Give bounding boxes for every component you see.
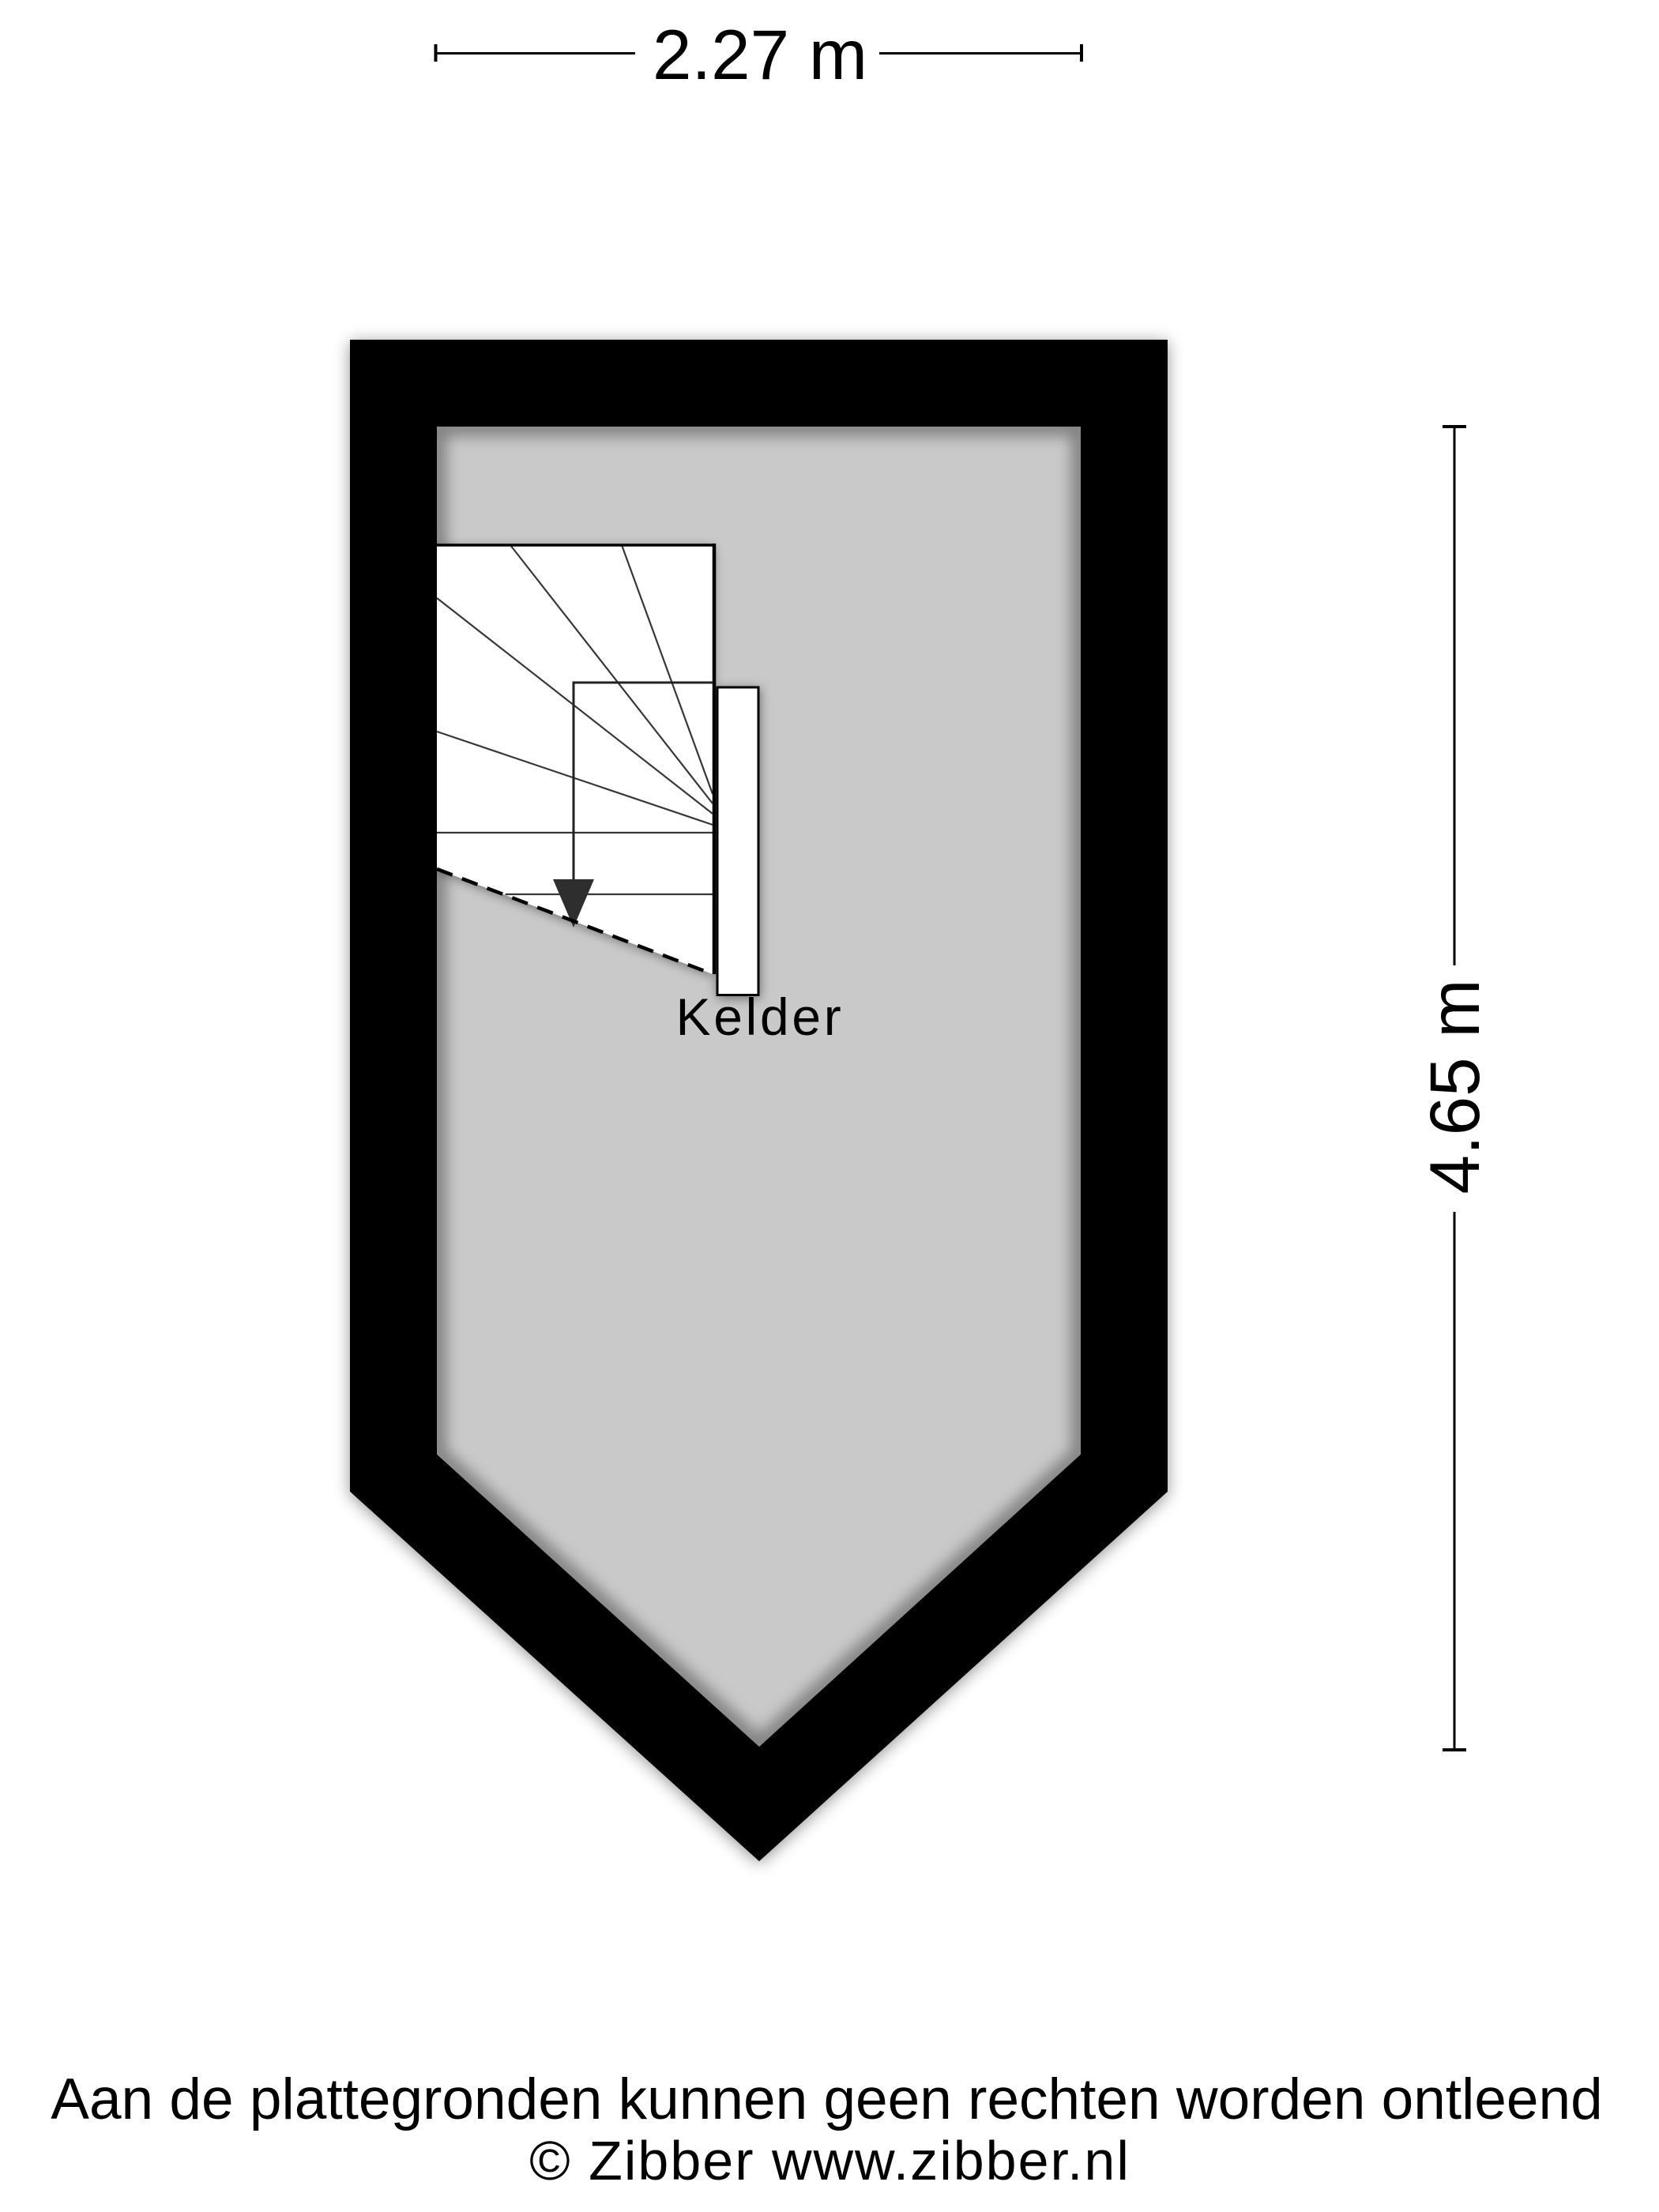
svg-text:2.27 m: 2.27 m — [653, 15, 867, 94]
svg-text:© Zibber www.zibber.nl: © Zibber www.zibber.nl — [529, 2130, 1130, 2191]
svg-text:Aan de plattegronden kunnen ge: Aan de plattegronden kunnen geen rechten… — [51, 2067, 1602, 2131]
svg-text:4.65 m: 4.65 m — [1415, 979, 1494, 1194]
svg-text:Kelder: Kelder — [676, 987, 845, 1046]
